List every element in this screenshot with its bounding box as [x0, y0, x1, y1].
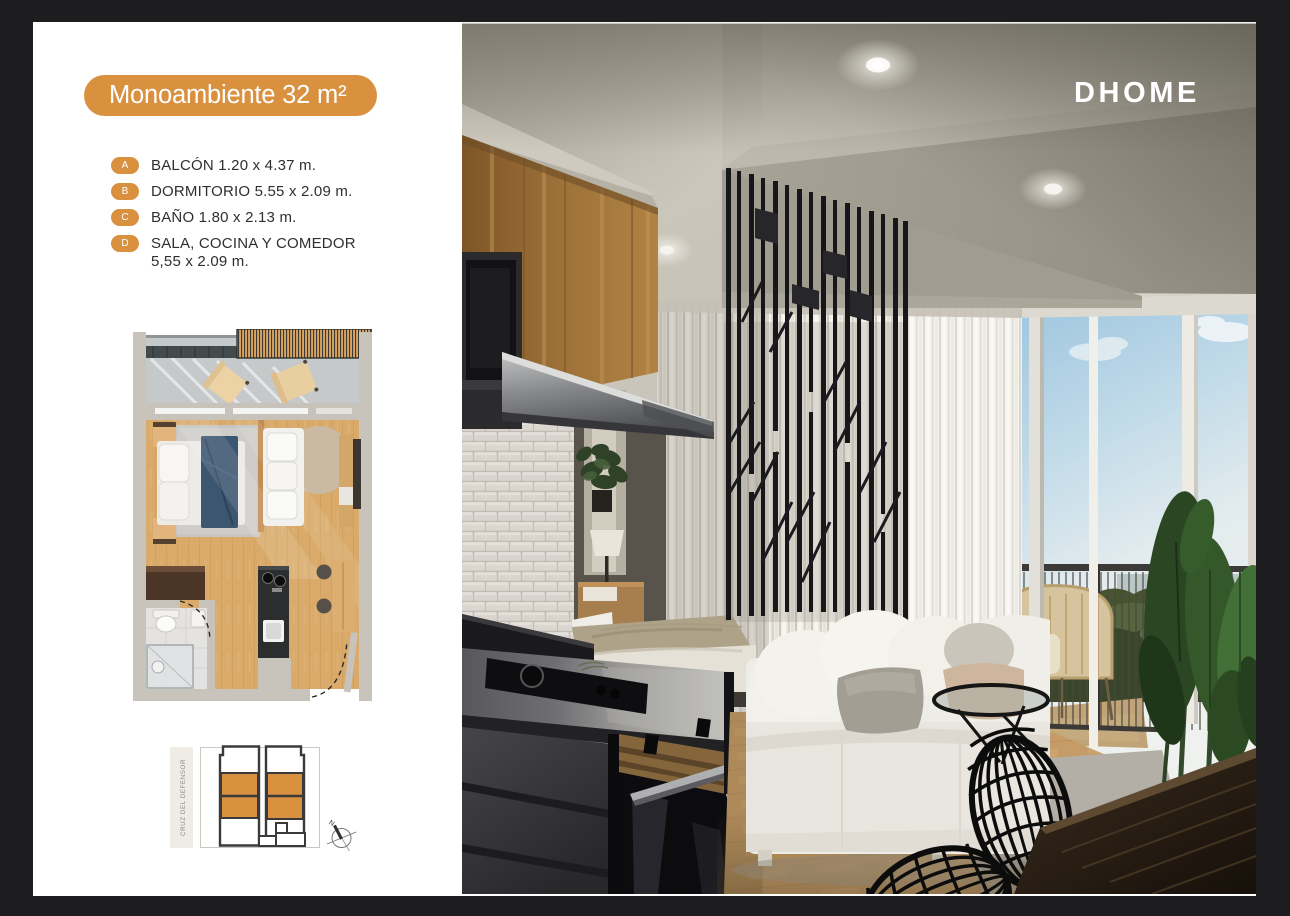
- svg-text:CRUZ DEL DEFENSOR: CRUZ DEL DEFENSOR: [180, 759, 187, 836]
- svg-text:DHOME: DHOME: [1074, 77, 1200, 109]
